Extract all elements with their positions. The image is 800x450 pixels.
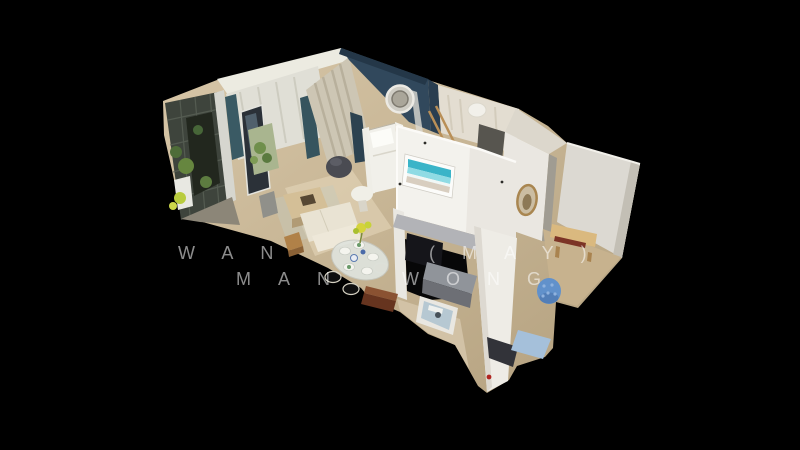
plant [178, 158, 194, 174]
scan-marker [424, 142, 427, 145]
floor-lamp [351, 186, 373, 202]
ghost-chair [343, 284, 359, 295]
ghost-chair [325, 272, 341, 283]
plant [193, 125, 203, 135]
dollhouse-model[interactable] [0, 0, 800, 450]
viewer-canvas[interactable]: WAN (MAY) MAN WONG [0, 0, 800, 450]
plant [170, 146, 182, 158]
scan-marker [399, 183, 402, 186]
towel-robe [468, 103, 486, 117]
plant-bright [169, 202, 177, 210]
scan-marker-red [487, 375, 492, 380]
plant-bright [174, 192, 186, 204]
plant [200, 176, 212, 188]
scan-marker [501, 181, 504, 184]
faucet [435, 312, 441, 318]
